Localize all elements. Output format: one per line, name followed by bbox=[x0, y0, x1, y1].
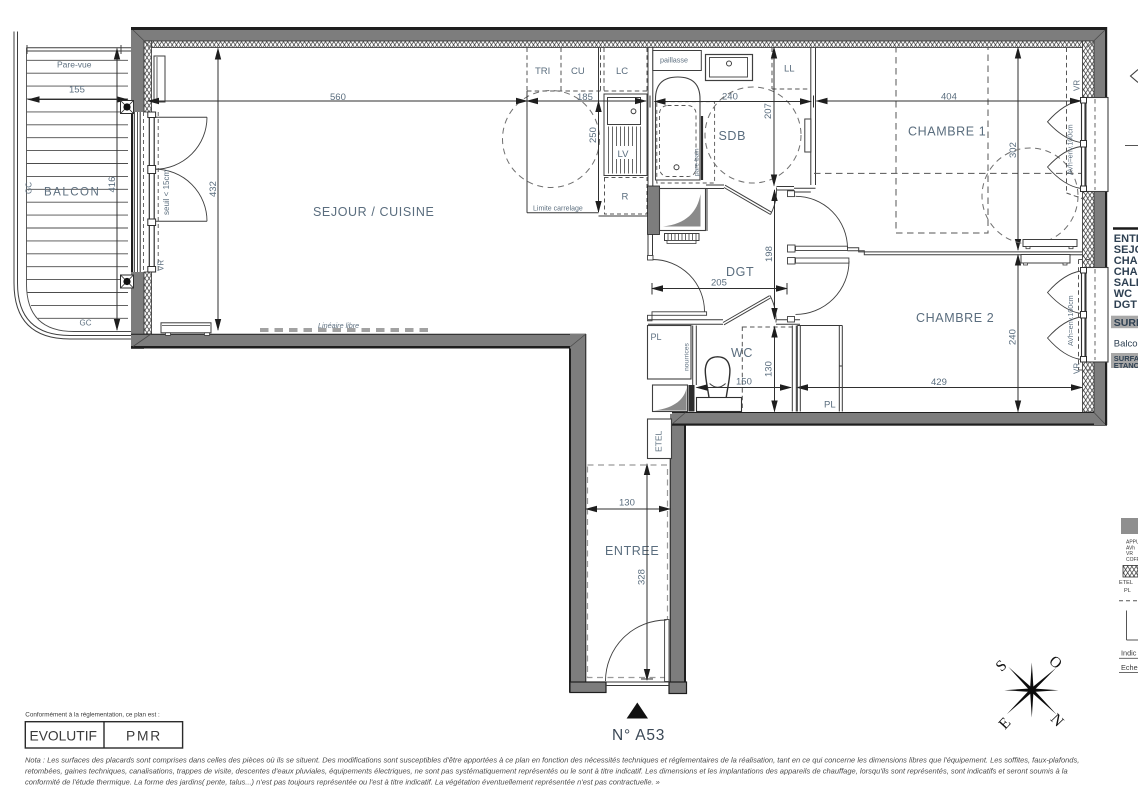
svg-text:seuil < 15cm: seuil < 15cm bbox=[162, 170, 171, 215]
svg-text:R: R bbox=[622, 192, 629, 203]
svg-text:240: 240 bbox=[722, 92, 738, 103]
svg-text:Nota : Les surfaces des placar: Nota : Les surfaces des placards sont co… bbox=[25, 756, 1079, 765]
svg-text:Limite carrelage: Limite carrelage bbox=[533, 206, 583, 213]
svg-text:Pare-vue: Pare-vue bbox=[57, 60, 92, 70]
svg-text:328: 328 bbox=[637, 569, 648, 585]
svg-text:250: 250 bbox=[588, 127, 599, 143]
svg-text:CU: CU bbox=[571, 66, 585, 77]
svg-text:pare-bain: pare-bain bbox=[694, 148, 701, 176]
svg-text:CHAMBRE 2: CHAMBRE 2 bbox=[916, 311, 994, 325]
svg-text:retombées, gaines techniques,: retombées, gaines techniques, canalisati… bbox=[25, 767, 1068, 776]
svg-text:paillasse: paillasse bbox=[660, 56, 688, 65]
svg-text:Balcon: Balcon bbox=[1114, 339, 1138, 350]
svg-text:205: 205 bbox=[711, 278, 727, 289]
svg-text:ENTREE: ENTREE bbox=[605, 544, 659, 558]
svg-text:130: 130 bbox=[764, 361, 775, 377]
svg-text:CHAMBRE 1: CHAMBRE 1 bbox=[908, 125, 986, 139]
svg-text:SDB: SDB bbox=[719, 129, 747, 143]
svg-text:GC: GC bbox=[80, 319, 92, 328]
svg-text:PL: PL bbox=[1124, 588, 1131, 594]
svg-text:DGT: DGT bbox=[726, 265, 754, 279]
svg-text:429: 429 bbox=[931, 377, 947, 388]
svg-text:ETEL: ETEL bbox=[654, 430, 664, 452]
svg-text:DGT: DGT bbox=[1114, 299, 1138, 311]
svg-text:Echel: Echel bbox=[1121, 663, 1138, 672]
svg-text:ETEL: ETEL bbox=[1119, 580, 1133, 586]
svg-text:Linéaire libre: Linéaire libre bbox=[318, 321, 359, 330]
svg-text:AVh=env.100cm: AVh=env.100cm bbox=[1068, 124, 1075, 175]
svg-text:SEJOUR / CUISINE: SEJOUR / CUISINE bbox=[313, 205, 434, 219]
svg-text:VR: VR bbox=[1073, 80, 1082, 91]
svg-text:LL: LL bbox=[784, 64, 795, 75]
svg-text:185: 185 bbox=[577, 92, 593, 103]
svg-text:432: 432 bbox=[208, 181, 219, 197]
svg-text:VR: VR bbox=[157, 260, 166, 271]
svg-text:155: 155 bbox=[69, 85, 85, 96]
svg-text:560: 560 bbox=[330, 92, 346, 103]
svg-text:PL: PL bbox=[824, 400, 836, 411]
svg-text:TRI: TRI bbox=[535, 66, 550, 77]
svg-text:240: 240 bbox=[1008, 329, 1019, 345]
svg-text:GC: GC bbox=[25, 182, 34, 194]
svg-text:207: 207 bbox=[763, 103, 774, 119]
svg-text:EVOLUTIF: EVOLUTIF bbox=[30, 729, 97, 744]
svg-text:416: 416 bbox=[107, 177, 118, 193]
svg-text:150: 150 bbox=[736, 377, 752, 388]
svg-text:LC: LC bbox=[616, 66, 628, 77]
svg-text:AVh=env.100cm: AVh=env.100cm bbox=[1068, 295, 1075, 346]
svg-text:LV: LV bbox=[618, 149, 630, 160]
svg-text:conformité de l'étude thermiqu: conformité de l'étude thermique. La form… bbox=[25, 778, 660, 787]
svg-text:Conformément à la réglementati: Conformément à la réglementation, ce pla… bbox=[25, 712, 160, 719]
svg-text:404: 404 bbox=[941, 92, 957, 103]
svg-text:N° A53: N° A53 bbox=[612, 727, 665, 744]
svg-text:BALCON: BALCON bbox=[44, 187, 100, 199]
svg-text:198: 198 bbox=[764, 246, 775, 262]
svg-text:nourrices: nourrices bbox=[684, 342, 691, 371]
svg-text:PL: PL bbox=[651, 332, 662, 342]
svg-text:SURFACE: SURFACE bbox=[1114, 317, 1138, 329]
svg-text:COFFRE: COFFRE bbox=[1126, 557, 1138, 563]
svg-text:PMR: PMR bbox=[126, 729, 162, 744]
svg-text:VR: VR bbox=[1073, 363, 1082, 374]
svg-text:130: 130 bbox=[619, 498, 635, 509]
svg-text:Indic: Indic bbox=[1121, 649, 1137, 658]
svg-text:ETANCHE: ETANCHE bbox=[1114, 361, 1138, 370]
